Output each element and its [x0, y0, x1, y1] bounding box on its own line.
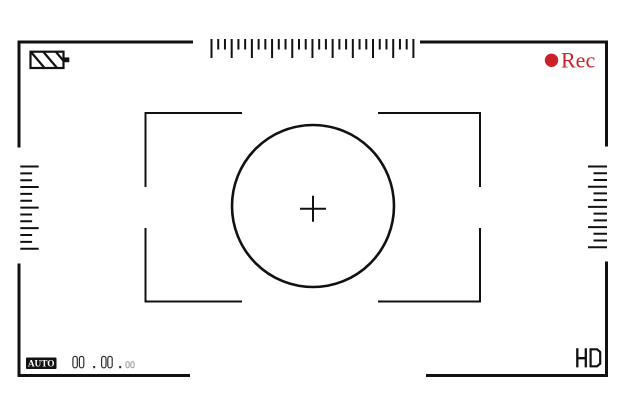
- svg-text:Rec: Rec: [561, 48, 595, 73]
- svg-text:AUTO: AUTO: [28, 360, 55, 370]
